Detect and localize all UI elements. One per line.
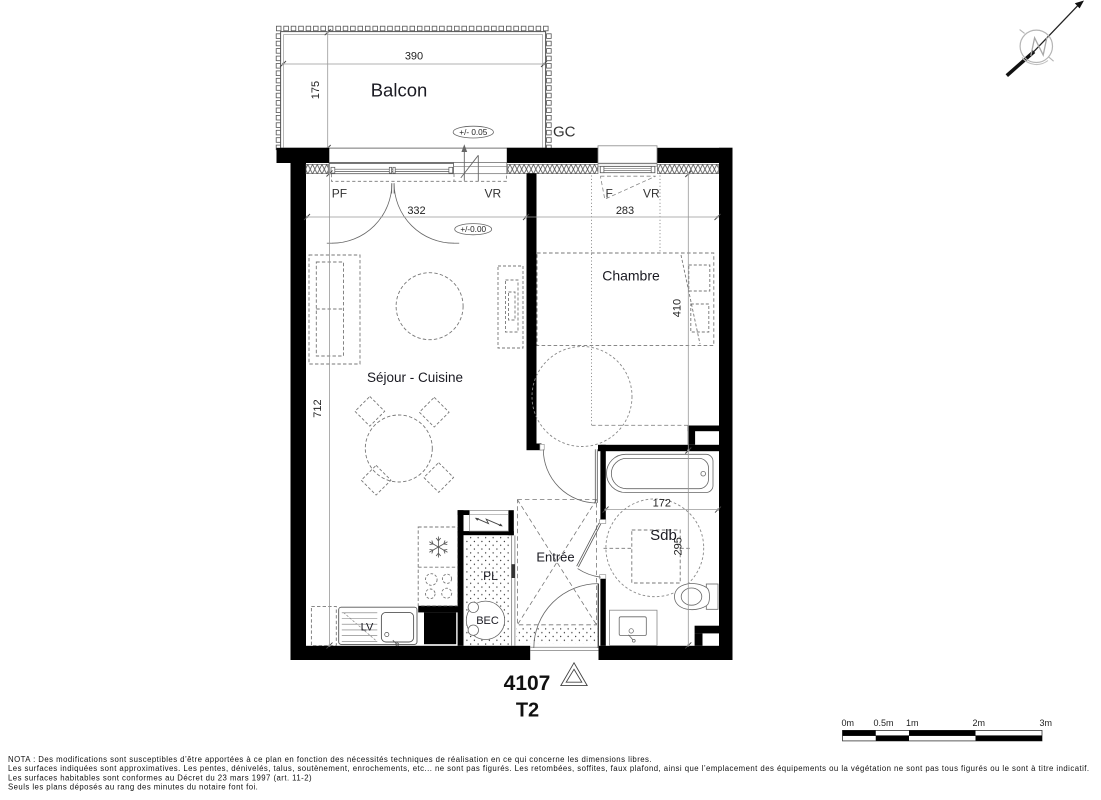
svg-text:2m: 2m xyxy=(973,718,986,728)
svg-text:Seuls les plans déposés au ran: Seuls les plans déposés au rang des minu… xyxy=(8,783,258,792)
svg-text:332: 332 xyxy=(407,205,425,217)
svg-text:PF: PF xyxy=(332,187,347,201)
svg-text:410: 410 xyxy=(672,299,684,317)
svg-text:175: 175 xyxy=(310,81,322,99)
svg-text:T2: T2 xyxy=(516,700,539,722)
svg-text:+/-0.00: +/-0.00 xyxy=(460,225,486,234)
svg-text:172: 172 xyxy=(653,498,671,510)
svg-text:Les surfaces indiquées sont ap: Les surfaces indiquées sont approximativ… xyxy=(8,764,1090,773)
svg-text:PL: PL xyxy=(483,569,498,583)
svg-text:712: 712 xyxy=(312,399,324,417)
svg-text:1m: 1m xyxy=(906,718,919,728)
svg-text:Séjour - Cuisine: Séjour - Cuisine xyxy=(367,370,463,385)
svg-text:295: 295 xyxy=(673,537,685,555)
svg-text:283: 283 xyxy=(616,205,634,217)
svg-text:BEC: BEC xyxy=(476,615,499,627)
svg-text:4107: 4107 xyxy=(504,672,551,695)
svg-text:0m: 0m xyxy=(842,718,855,728)
svg-text:Les surfaces habitables sont c: Les surfaces habitables sont conformes a… xyxy=(8,773,312,782)
svg-text:Entrée: Entrée xyxy=(536,550,574,565)
svg-text:390: 390 xyxy=(405,51,423,63)
svg-text:F: F xyxy=(606,187,613,201)
svg-text:GC: GC xyxy=(553,124,576,141)
svg-text:+/- 0.05: +/- 0.05 xyxy=(459,128,487,137)
svg-text:3m: 3m xyxy=(1040,718,1053,728)
svg-text:VR: VR xyxy=(485,187,502,201)
svg-text:0.5m: 0.5m xyxy=(874,718,894,728)
svg-text:VR: VR xyxy=(643,187,660,201)
svg-text:NOTA : Des modifications sont: NOTA : Des modifications sont susceptibl… xyxy=(8,755,652,764)
svg-text:Balcon: Balcon xyxy=(371,80,428,101)
svg-text:Chambre: Chambre xyxy=(602,268,660,284)
svg-text:LV: LV xyxy=(361,622,374,634)
